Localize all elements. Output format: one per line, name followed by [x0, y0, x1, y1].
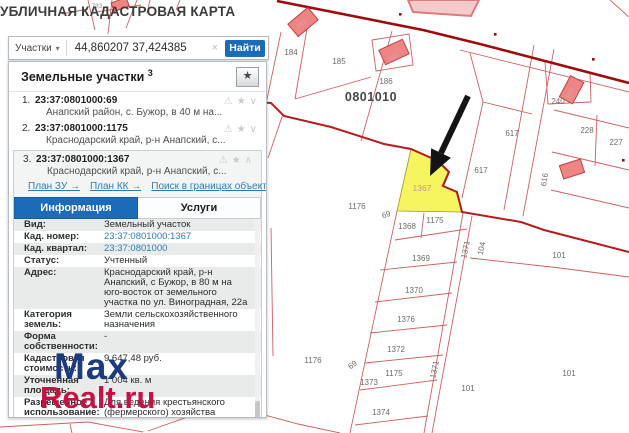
parcel-label: 1371: [459, 239, 472, 259]
watermark-line1: Max: [54, 350, 155, 384]
item-description: Анапский район, с. Бужор, в 40 м на...: [46, 107, 256, 118]
parcel-label: 0801010: [345, 90, 397, 104]
results-header: Земельные участки 3 ★: [9, 62, 266, 92]
info-label: Вид:: [24, 220, 104, 230]
result-item-1[interactable]: 1.23:37:0801000:69 Анапский район, с. Бу…: [9, 92, 266, 120]
pink-building-outline: [408, 0, 479, 16]
parcel-label: 69: [380, 209, 392, 221]
results-count: 3: [148, 68, 153, 78]
parcel-label: 1368: [398, 222, 416, 231]
chevron-down-icon: ▾: [56, 44, 60, 53]
search-button[interactable]: Найти: [225, 40, 265, 57]
info-row: Кад. квартал: 23:37:0801000: [14, 243, 261, 255]
tab-information[interactable]: Информация: [14, 197, 138, 219]
result-item-2[interactable]: 2.23:37:0801000:1175 Краснодарский край,…: [9, 120, 266, 148]
parcel-label: 227: [609, 138, 623, 147]
parcel-label: 101: [461, 384, 475, 393]
item-links: План ЗУ → План КК → Поиск в границах объ…: [14, 179, 261, 197]
item-number: 1.: [22, 95, 35, 106]
parcel-label: 104: [476, 240, 488, 255]
parcel-label: 1176: [348, 202, 366, 211]
search-category-dropdown[interactable]: Участки ▾: [9, 43, 66, 54]
clear-icon[interactable]: ×: [212, 42, 218, 54]
item-icons: ⚠ ★ ∨: [224, 96, 257, 107]
info-row: Статус: Учтенный: [14, 255, 261, 267]
scrollbar-thumb[interactable]: [255, 401, 260, 418]
parcel-label: 228: [580, 126, 594, 135]
scrollbar[interactable]: [255, 219, 260, 418]
parcel-label: 617: [474, 166, 488, 175]
watermark: Max Realt.ru: [40, 350, 155, 413]
info-row: Вид: Земельный участок: [14, 219, 261, 231]
warning-icon[interactable]: ⚠: [224, 96, 233, 107]
parcel-label: 1371: [428, 359, 441, 379]
parcel-label: 1176: [304, 356, 322, 365]
parcel-label: 69: [346, 358, 359, 371]
parcel-label: 185: [332, 57, 346, 66]
star-icon[interactable]: ★: [237, 124, 246, 135]
item-icons: ⚠ ★ ∨: [224, 124, 257, 135]
parcel-label: 1369: [412, 254, 430, 263]
result-item-3[interactable]: 3.23:37:0801000:1367 Краснодарский край,…: [14, 151, 261, 179]
cadastral-number: 23:37:0801000:1367: [36, 154, 129, 165]
warning-icon[interactable]: ⚠: [219, 155, 228, 166]
parcel-label: 240: [551, 97, 565, 106]
info-value: Учтенный: [104, 256, 249, 266]
detail-tabs: Информация Услуги: [14, 197, 261, 219]
highlighted-parcel-1367[interactable]: [397, 149, 462, 212]
info-value[interactable]: 23:37:0801000:1367: [104, 232, 249, 242]
info-value: Краснодарский край, р-н Анапский, с Бужо…: [104, 268, 249, 308]
info-row: Категория земель: Земли сельскохозяйстве…: [14, 309, 261, 331]
parcel-label: 616: [539, 172, 550, 187]
parcel-label: 1370: [405, 286, 423, 295]
parcel-label: 1376: [397, 315, 415, 324]
item-link[interactable]: План ЗУ →: [28, 181, 80, 192]
cadastral-number: 23:37:0801000:69: [35, 95, 117, 106]
info-row: Кад. номер: 23:37:0801000:1367: [14, 231, 261, 243]
parcel-label: 1175: [426, 216, 444, 225]
item-icons: ⚠ ★ ∧: [219, 155, 252, 166]
info-label: Категория земель:: [24, 310, 104, 330]
favorites-button[interactable]: ★: [236, 67, 259, 87]
chevron-up-icon[interactable]: ∧: [245, 155, 252, 166]
screenshot-stage: 7837871841855021860801010605240617228227…: [0, 0, 629, 433]
watermark-line2: Realt.ru: [40, 384, 155, 413]
parcel-label: 184: [284, 48, 298, 57]
parcel-label: 101: [552, 251, 566, 260]
parcel-label: 617: [505, 129, 519, 138]
info-label: Кад. номер:: [24, 232, 104, 242]
star-icon[interactable]: ★: [237, 96, 246, 107]
cadastral-number: 23:37:0801000:1175: [35, 123, 128, 134]
parcel-label: 1175: [385, 369, 403, 378]
info-value: Земельный участок: [104, 220, 249, 230]
item-number: 3.: [23, 154, 36, 165]
pointer-arrow: [430, 96, 468, 176]
info-value: Земли сельскохозяйственного назначения: [104, 310, 249, 330]
parcel-label: 1373: [360, 378, 378, 387]
chevron-down-icon[interactable]: ∨: [250, 96, 257, 107]
tab-services[interactable]: Услуги: [138, 197, 261, 219]
results-title: Земельные участки 3: [21, 70, 153, 84]
parcel-label: 1372: [387, 345, 405, 354]
item-description: Краснодарский край, р-н Анапский, с...: [46, 135, 256, 146]
star-icon[interactable]: ★: [232, 155, 241, 166]
item-number: 2.: [22, 123, 35, 134]
info-value[interactable]: 23:37:0801000: [104, 244, 249, 254]
item-link[interactable]: Поиск в границах объекта →: [151, 181, 267, 192]
chevron-down-icon[interactable]: ∨: [250, 124, 257, 135]
search-input[interactable]: 44,860207 37,424385: [67, 42, 210, 54]
info-label: Адрес:: [24, 268, 104, 308]
parcel-label: 1374: [372, 408, 390, 417]
warning-icon[interactable]: ⚠: [224, 124, 233, 135]
info-label: Статус:: [24, 256, 104, 266]
info-label: Кад. квартал:: [24, 244, 104, 254]
star-icon: ★: [243, 70, 253, 82]
item-description: Краснодарский край, р-н Анапский, с...: [47, 166, 251, 177]
app-title: УБЛИЧНАЯ КАДАСТРОВАЯ КАРТА: [0, 4, 235, 19]
parcel-label: 1367: [413, 183, 432, 193]
info-row: Адрес: Краснодарский край, р-н Анапский,…: [14, 267, 261, 309]
parcel-label: 186: [379, 77, 393, 86]
search-category-label: Участки: [15, 43, 52, 54]
parcel-label: 101: [562, 369, 576, 378]
item-link[interactable]: План КК →: [90, 181, 141, 192]
search-bar: Участки ▾ 44,860207 37,424385 × Найти: [8, 36, 269, 60]
